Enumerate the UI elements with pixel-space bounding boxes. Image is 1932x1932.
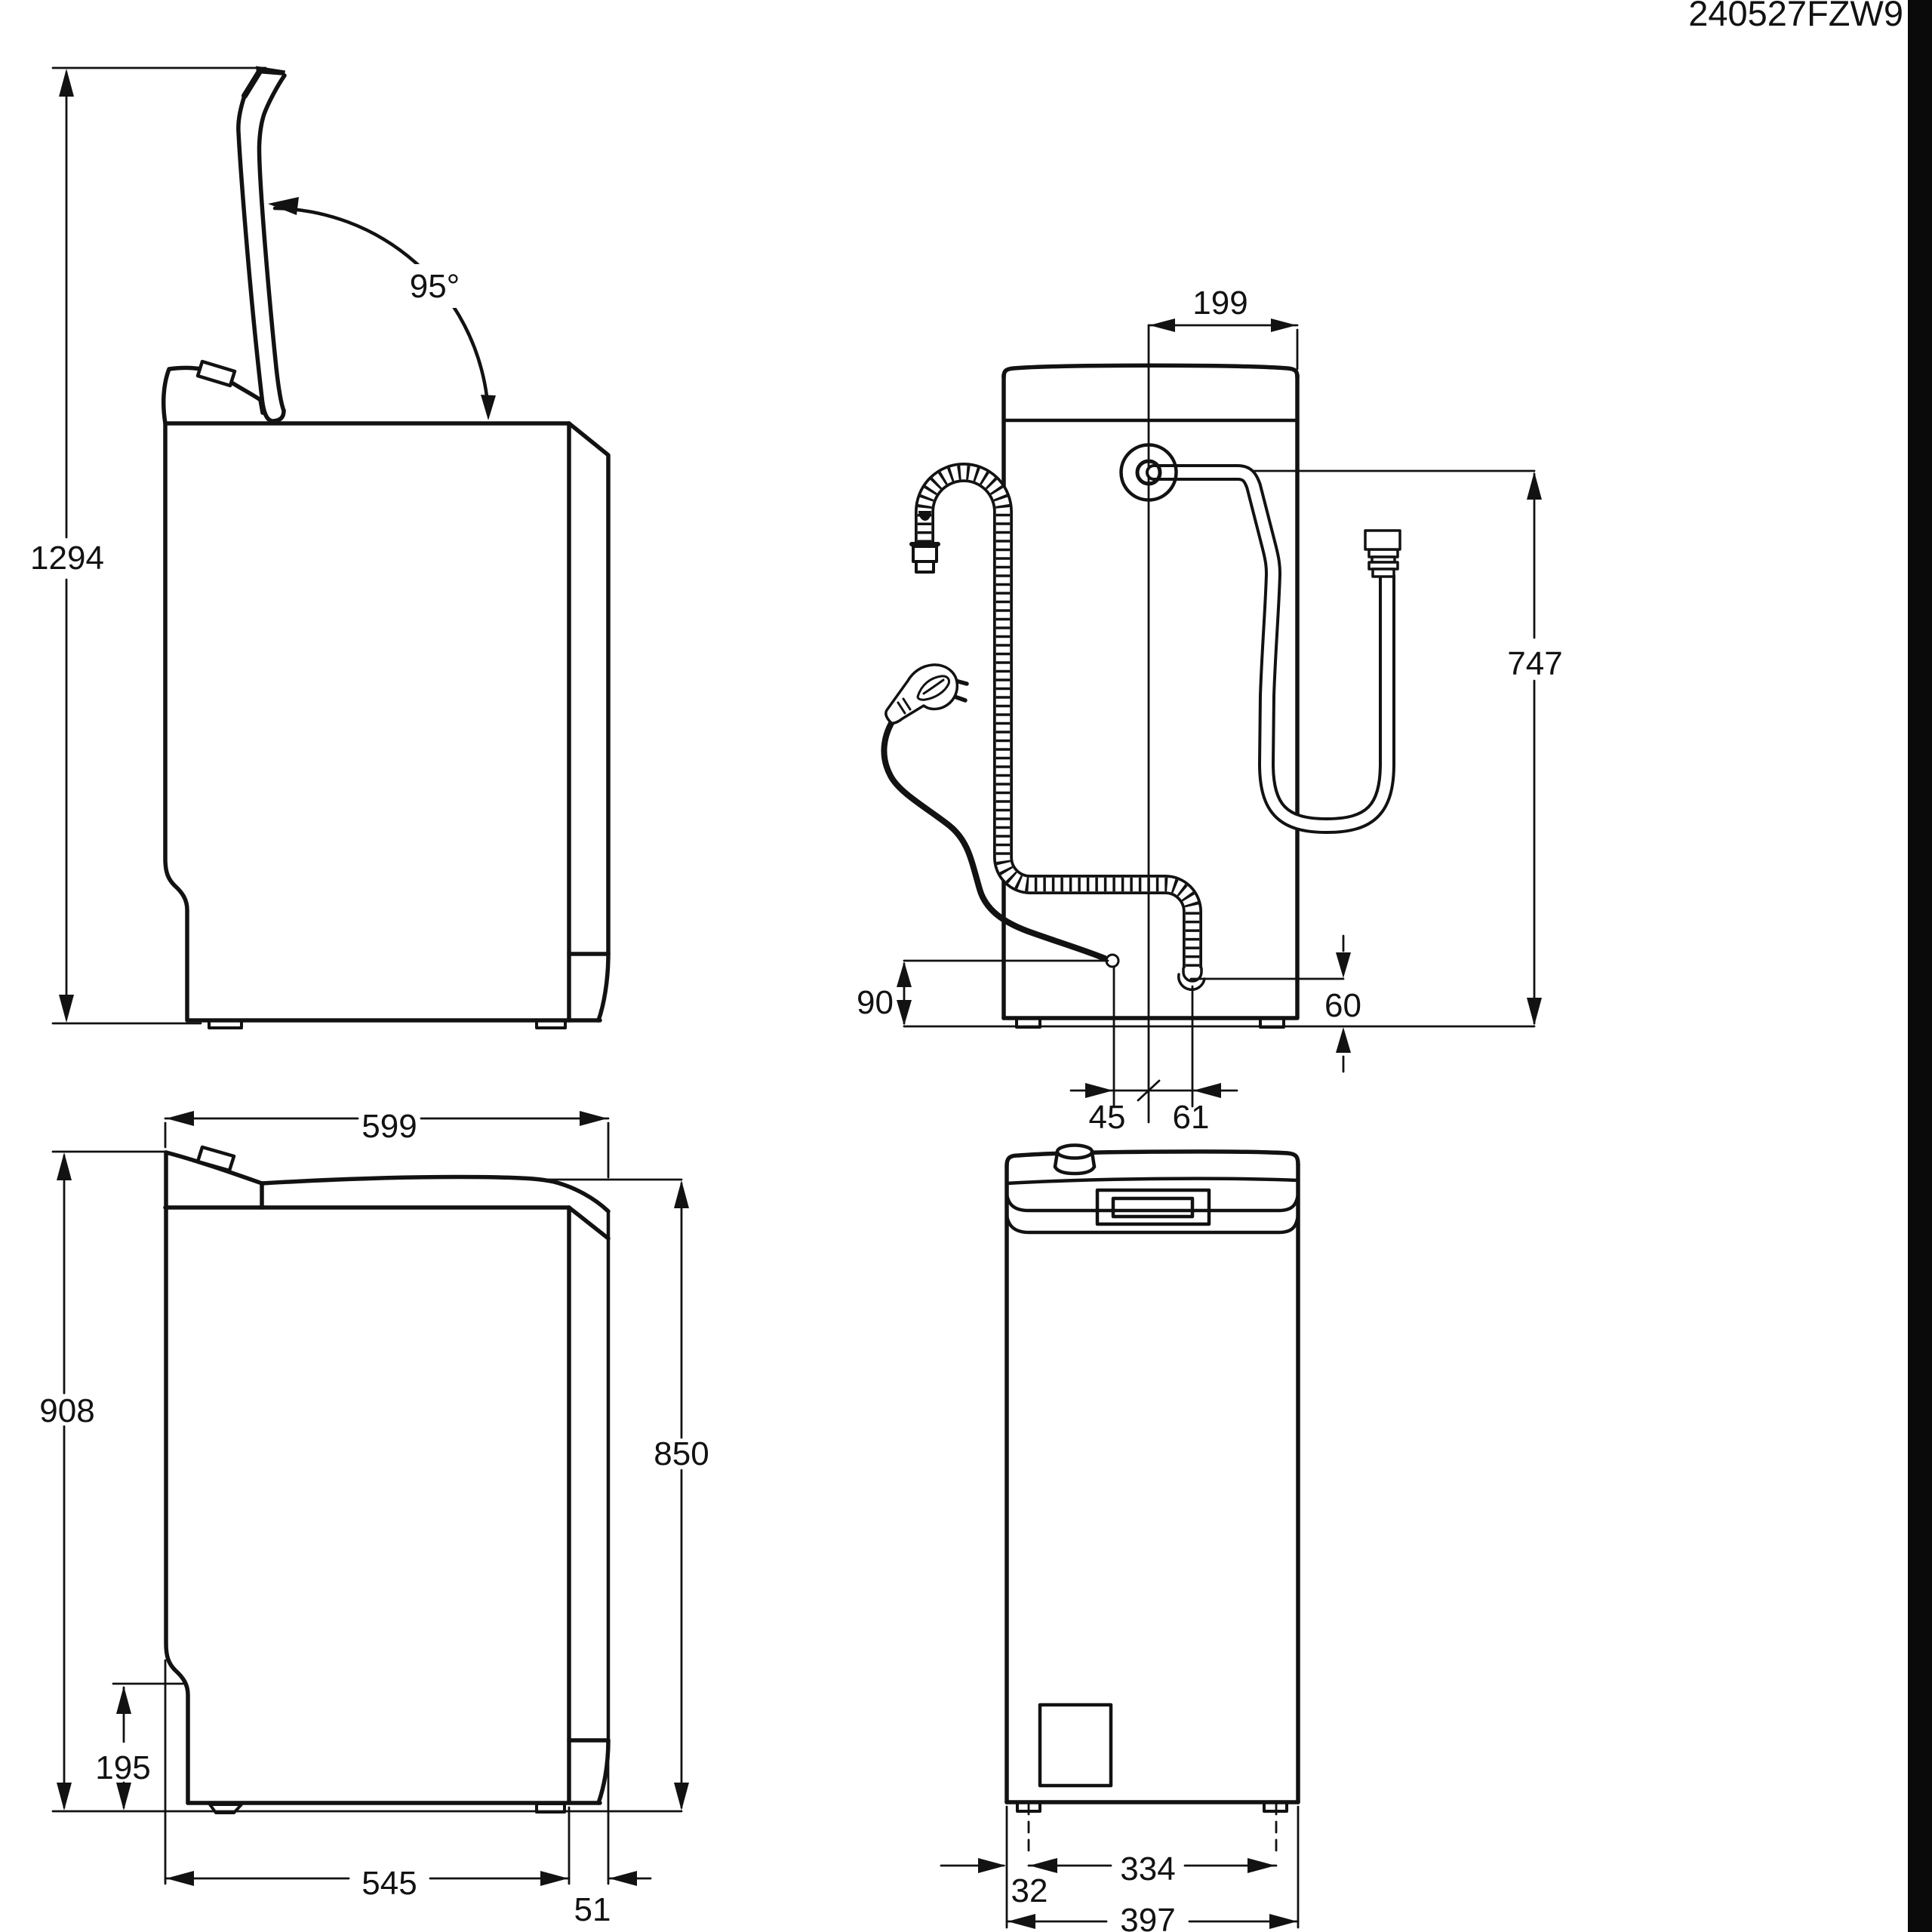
svg-text:334: 334 xyxy=(1120,1850,1175,1887)
svg-text:199: 199 xyxy=(1192,285,1247,321)
svg-text:51: 51 xyxy=(574,1891,611,1928)
svg-text:397: 397 xyxy=(1120,1902,1175,1932)
svg-text:90: 90 xyxy=(857,984,894,1021)
svg-text:95°: 95° xyxy=(410,268,460,305)
svg-text:850: 850 xyxy=(654,1435,709,1472)
svg-text:747: 747 xyxy=(1507,645,1562,682)
svg-text:240527FZW9: 240527FZW9 xyxy=(1688,0,1903,33)
svg-text:60: 60 xyxy=(1324,987,1361,1024)
svg-text:45: 45 xyxy=(1089,1099,1126,1136)
svg-text:908: 908 xyxy=(39,1392,94,1429)
svg-text:1294: 1294 xyxy=(30,540,104,577)
svg-text:195: 195 xyxy=(95,1749,150,1786)
svg-text:32: 32 xyxy=(1011,1872,1048,1909)
svg-text:61: 61 xyxy=(1173,1099,1210,1136)
svg-text:599: 599 xyxy=(361,1108,417,1145)
svg-text:545: 545 xyxy=(361,1865,417,1902)
